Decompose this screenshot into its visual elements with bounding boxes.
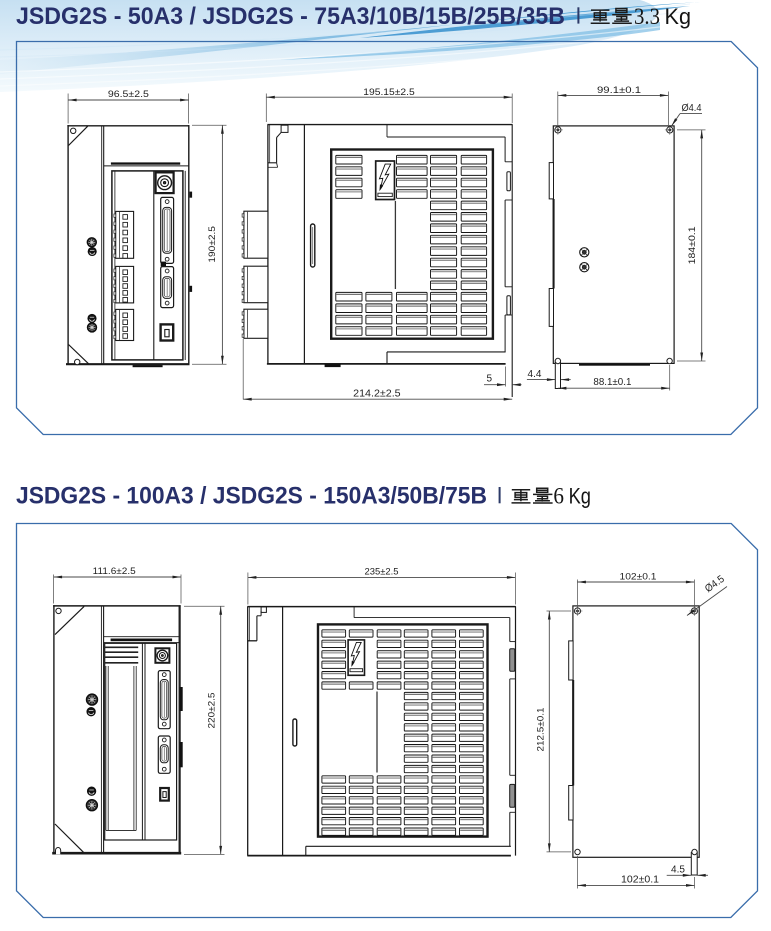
svg-text:3.3: 3.3 (634, 4, 660, 29)
svg-text:Kg: Kg (665, 4, 692, 29)
svg-text:6: 6 (553, 484, 564, 509)
svg-text:214.2±2.5: 214.2±2.5 (353, 388, 401, 400)
svg-text:88.1±0.1: 88.1±0.1 (593, 377, 631, 388)
svg-text:184±0.1: 184±0.1 (687, 226, 698, 264)
svg-text:Kg: Kg (569, 484, 591, 509)
svg-text:4.5: 4.5 (671, 864, 685, 875)
svg-text:4.4: 4.4 (528, 369, 542, 380)
svg-text:195.15±2.5: 195.15±2.5 (363, 87, 415, 98)
svg-text:JSDG2S - 100A3 / JSDG2S - 150A: JSDG2S - 100A3 / JSDG2S - 150A3/50B/75B (16, 483, 487, 510)
svg-text:212.5±0.1: 212.5±0.1 (536, 708, 547, 752)
svg-text:Ø4.4: Ø4.4 (682, 102, 702, 114)
svg-text:220±2.5: 220±2.5 (206, 693, 217, 729)
svg-text:235±2.5: 235±2.5 (365, 567, 399, 578)
svg-text:102±0.1: 102±0.1 (620, 571, 657, 582)
svg-text:190±2.5: 190±2.5 (207, 226, 218, 262)
svg-text:JSDG2S - 50A3 / JSDG2S - 75A3/: JSDG2S - 50A3 / JSDG2S - 75A3/10B/15B/25… (16, 3, 565, 30)
svg-text:5: 5 (487, 373, 493, 384)
svg-text:102±0.1: 102±0.1 (621, 874, 659, 885)
svg-text:111.6±2.5: 111.6±2.5 (93, 566, 136, 577)
svg-text:Ø4.5: Ø4.5 (703, 573, 727, 595)
svg-text:96.5±2.5: 96.5±2.5 (108, 89, 149, 100)
svg-text:99.1±0.1: 99.1±0.1 (597, 85, 641, 96)
